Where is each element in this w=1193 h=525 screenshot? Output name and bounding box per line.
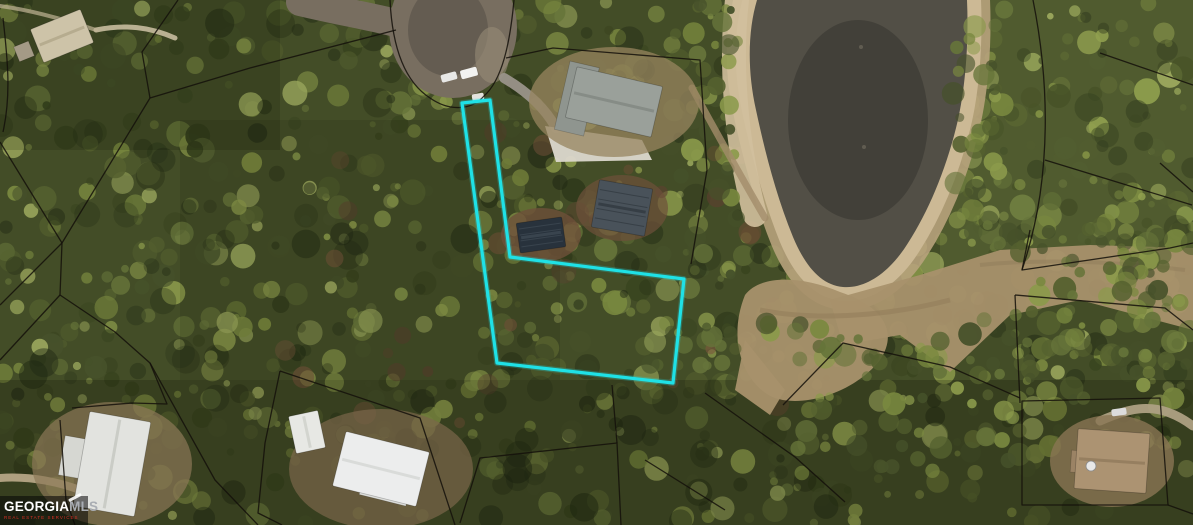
aerial-photo (0, 0, 1193, 525)
aerial-map-image: GEORGIAMLS REAL ESTATE SERVICES (0, 0, 1193, 525)
construction-large (591, 180, 653, 237)
house-bottom-right (1069, 428, 1150, 493)
brand-tagline: REAL ESTATE SERVICES (4, 516, 84, 521)
brand-georgia: GEORGIA (4, 499, 69, 514)
brand-wordmark: GEORGIAMLS (4, 500, 84, 514)
watermark-logo: GEORGIAMLS REAL ESTATE SERVICES (0, 496, 88, 525)
satellite-dish (1086, 461, 1096, 471)
construction-small (516, 217, 566, 253)
brand-mls: MLS (69, 499, 98, 514)
